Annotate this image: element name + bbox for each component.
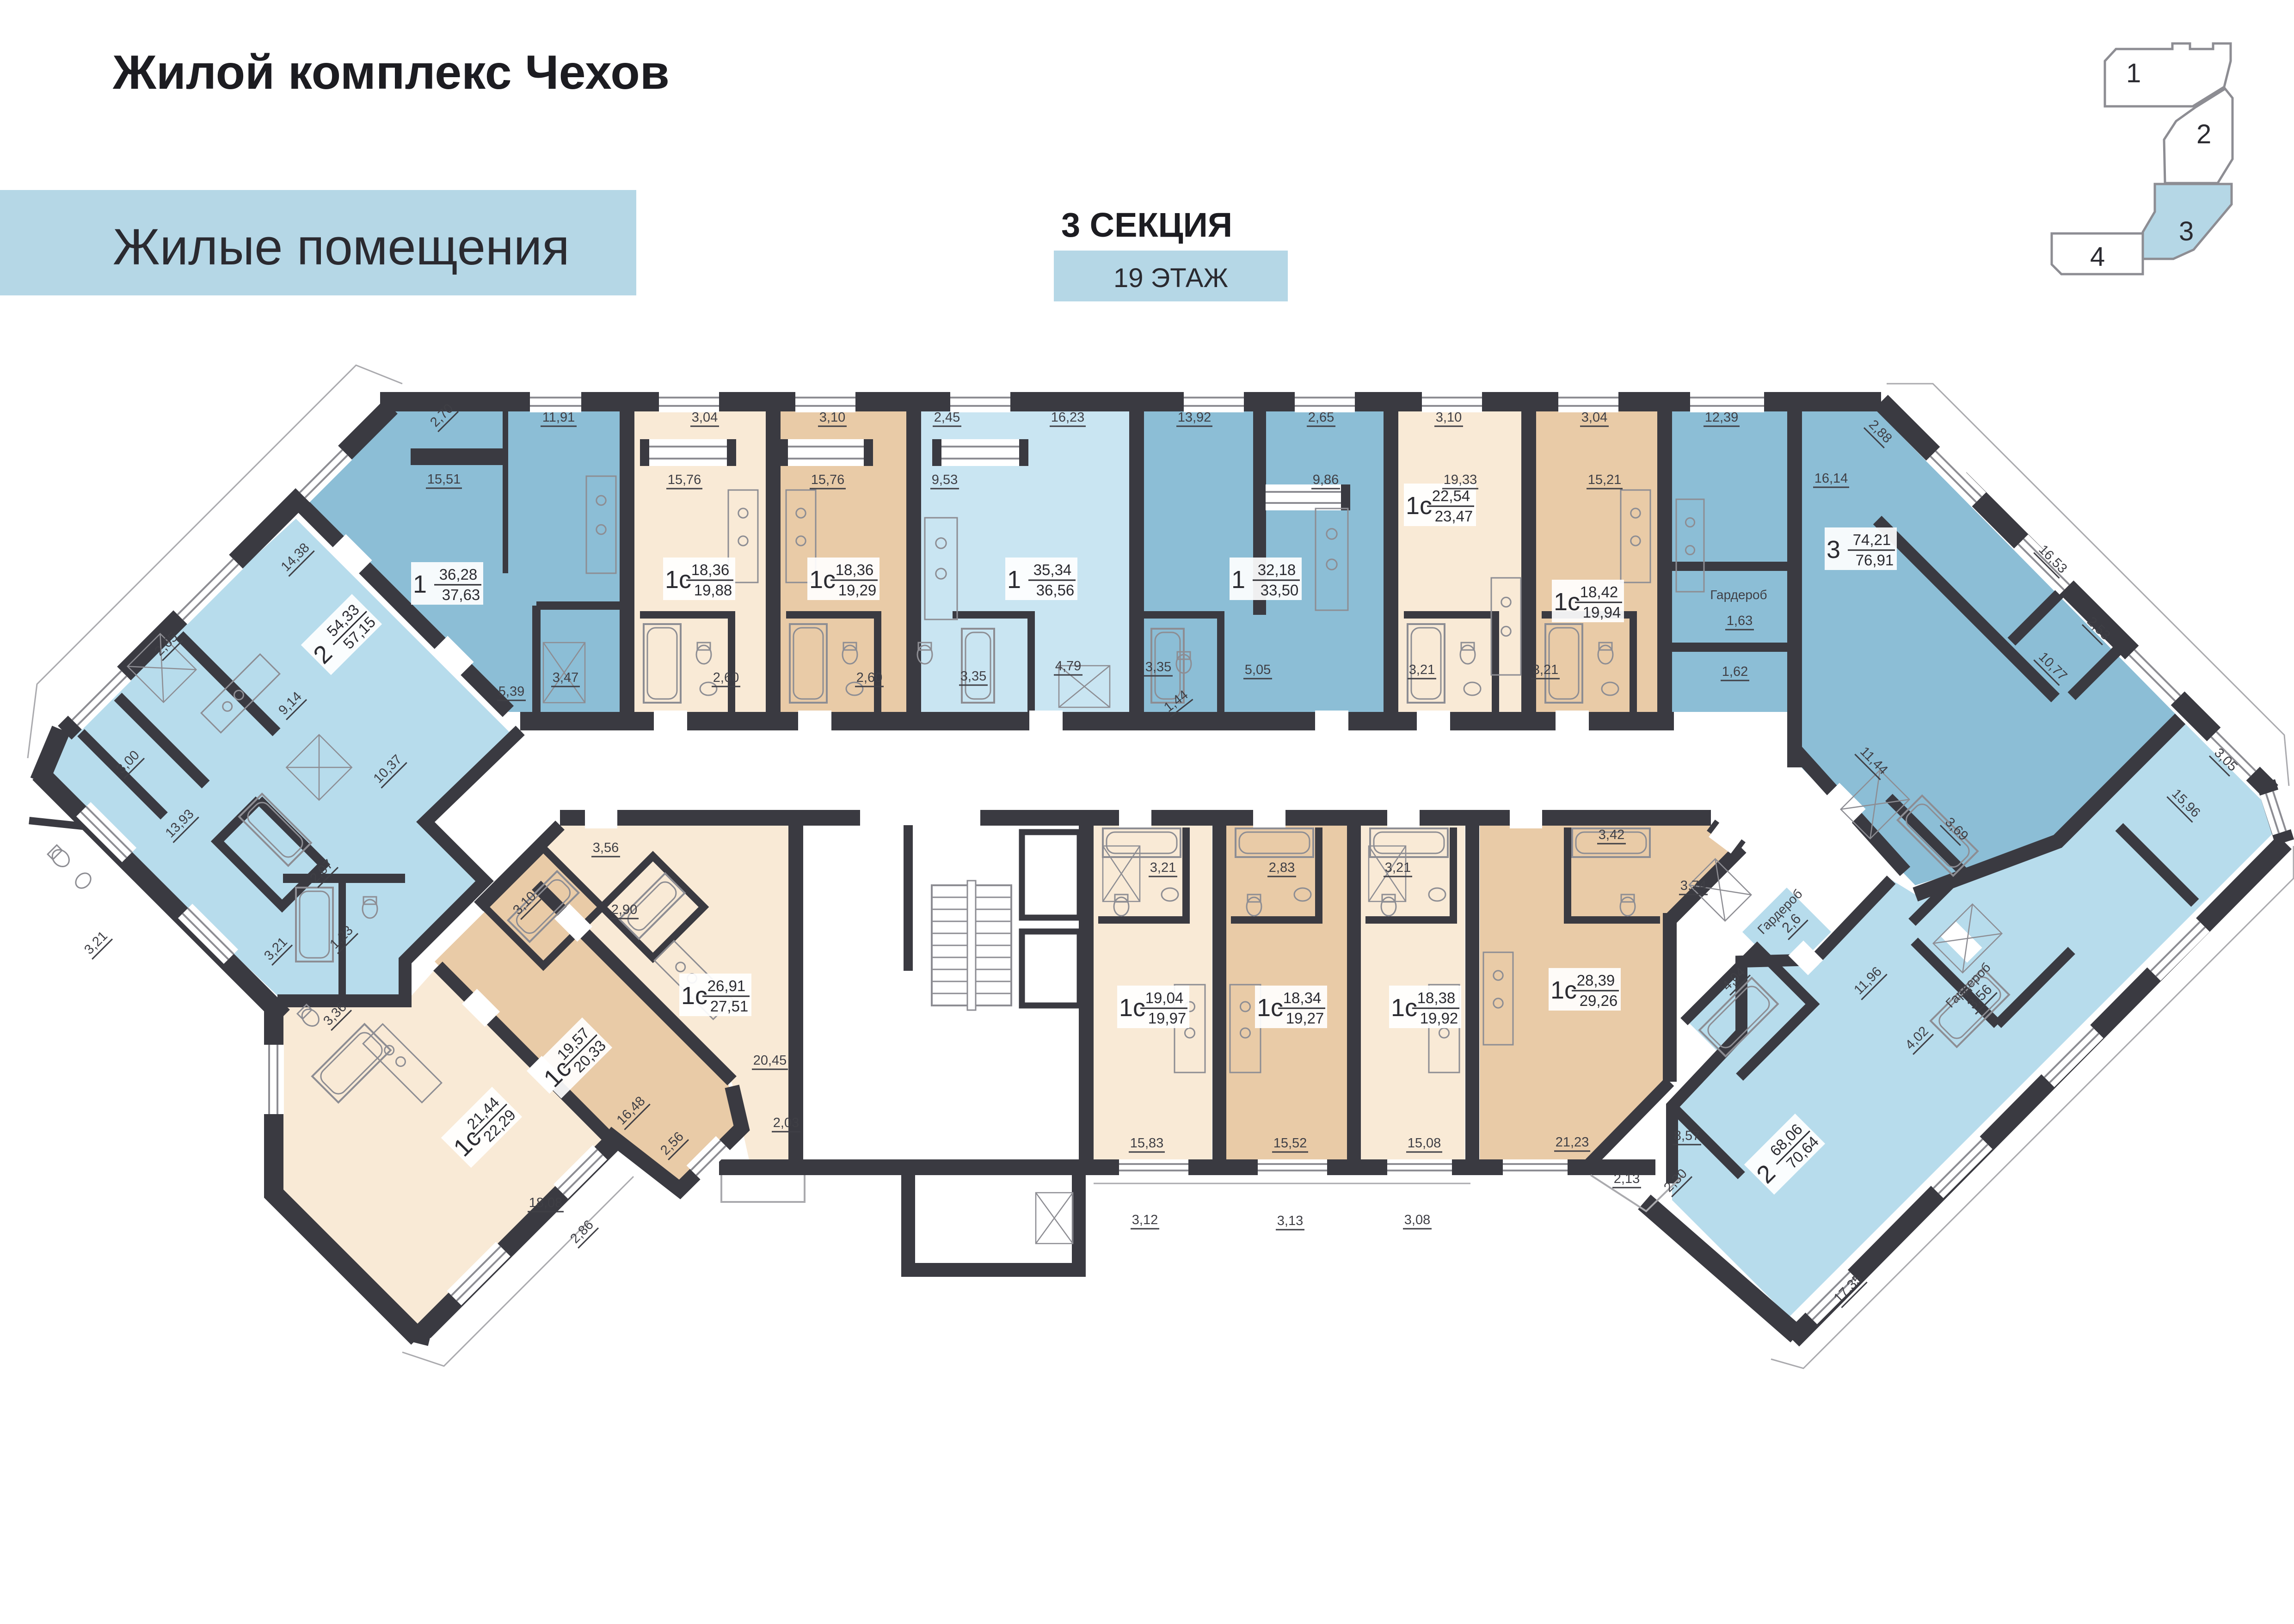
- svg-text:2,83: 2,83: [1269, 860, 1295, 875]
- svg-text:27,51: 27,51: [710, 998, 749, 1015]
- svg-text:1,62: 1,62: [1722, 664, 1748, 679]
- svg-text:18,34: 18,34: [1283, 989, 1322, 1006]
- svg-text:19,04: 19,04: [1145, 989, 1184, 1006]
- svg-text:1: 1: [1231, 566, 1245, 594]
- svg-text:3,21: 3,21: [1409, 662, 1435, 677]
- svg-text:35,34: 35,34: [1033, 561, 1072, 578]
- svg-text:29,26: 29,26: [1580, 992, 1618, 1009]
- svg-text:1,63: 1,63: [1727, 613, 1753, 628]
- svg-text:4: 4: [2090, 242, 2105, 272]
- svg-text:Жилые помещения: Жилые помещения: [113, 219, 570, 276]
- svg-text:3,21: 3,21: [1532, 662, 1558, 677]
- svg-text:36,28: 36,28: [439, 566, 478, 583]
- svg-text:16,14: 16,14: [1814, 471, 1848, 486]
- svg-text:Гардероб: Гардероб: [1710, 588, 1767, 602]
- svg-text:18,42: 18,42: [1580, 583, 1618, 601]
- svg-text:3,21: 3,21: [1150, 860, 1176, 875]
- svg-text:5,39: 5,39: [498, 684, 524, 699]
- svg-text:9,53: 9,53: [932, 472, 958, 487]
- svg-text:19,94: 19,94: [1583, 604, 1621, 621]
- svg-text:23,47: 23,47: [1435, 508, 1473, 525]
- svg-text:3,08: 3,08: [1404, 1213, 1430, 1227]
- svg-text:19,33: 19,33: [1444, 472, 1477, 487]
- svg-text:2,90: 2,90: [611, 902, 637, 917]
- svg-text:3,04: 3,04: [692, 410, 718, 425]
- svg-text:19,88: 19,88: [694, 582, 732, 599]
- svg-text:Жилой комплекс Чехов: Жилой комплекс Чехов: [112, 46, 670, 99]
- svg-text:3: 3: [2179, 216, 2194, 246]
- svg-text:2: 2: [2196, 119, 2211, 149]
- svg-text:15,52: 15,52: [1273, 1136, 1307, 1151]
- svg-text:3,21: 3,21: [1385, 860, 1411, 875]
- svg-text:76,91: 76,91: [1856, 552, 1894, 569]
- svg-text:2,60: 2,60: [713, 670, 739, 685]
- svg-text:16,23: 16,23: [1051, 410, 1085, 425]
- svg-text:3: 3: [1827, 536, 1840, 564]
- svg-text:4,79: 4,79: [1055, 659, 1081, 674]
- svg-text:3 СЕКЦИЯ: 3 СЕКЦИЯ: [1061, 206, 1232, 244]
- svg-text:3,35: 3,35: [960, 669, 986, 684]
- svg-text:18,36: 18,36: [691, 561, 730, 578]
- svg-text:21,23: 21,23: [1556, 1135, 1589, 1150]
- svg-text:19,97: 19,97: [1148, 1010, 1187, 1027]
- svg-text:12,39: 12,39: [1705, 410, 1739, 425]
- svg-text:2,13: 2,13: [1614, 1171, 1640, 1186]
- svg-text:19,29: 19,29: [838, 582, 877, 599]
- svg-text:2,60: 2,60: [856, 670, 882, 685]
- svg-text:15,76: 15,76: [811, 472, 845, 487]
- svg-text:26,91: 26,91: [707, 977, 746, 994]
- svg-text:1: 1: [1007, 566, 1021, 594]
- svg-text:3,04: 3,04: [1581, 410, 1607, 425]
- svg-text:15,08: 15,08: [1408, 1136, 1441, 1151]
- svg-text:3,10: 3,10: [1436, 410, 1462, 425]
- svg-text:3,42: 3,42: [1599, 827, 1624, 842]
- svg-text:11,91: 11,91: [542, 410, 575, 425]
- svg-text:33,50: 33,50: [1261, 582, 1299, 599]
- svg-text:3,74: 3,74: [1680, 878, 1706, 893]
- svg-text:15,51: 15,51: [427, 472, 461, 487]
- svg-text:3,56: 3,56: [593, 840, 619, 855]
- svg-text:3,12: 3,12: [1132, 1213, 1158, 1227]
- svg-text:19,92: 19,92: [1420, 1010, 1458, 1027]
- svg-text:3,35: 3,35: [1145, 660, 1171, 674]
- svg-text:13,92: 13,92: [1178, 410, 1212, 425]
- svg-text:37,63: 37,63: [442, 586, 480, 603]
- svg-text:3,47: 3,47: [553, 670, 578, 685]
- svg-text:2,45: 2,45: [934, 410, 960, 425]
- svg-text:8,57: 8,57: [1674, 1128, 1700, 1143]
- svg-text:3,13: 3,13: [1277, 1213, 1303, 1228]
- svg-text:2,03: 2,03: [773, 1115, 799, 1130]
- svg-text:15,83: 15,83: [1130, 1136, 1164, 1151]
- svg-text:74,21: 74,21: [1853, 531, 1891, 548]
- svg-text:2,65: 2,65: [1308, 410, 1334, 425]
- svg-text:1: 1: [413, 570, 427, 598]
- svg-text:20,45: 20,45: [753, 1053, 787, 1068]
- svg-text:36,56: 36,56: [1036, 582, 1075, 599]
- svg-text:1: 1: [2126, 58, 2141, 88]
- svg-text:22,54: 22,54: [1432, 487, 1470, 504]
- svg-text:28,39: 28,39: [1577, 972, 1615, 989]
- svg-text:3,10: 3,10: [819, 410, 845, 425]
- svg-text:9,86: 9,86: [1313, 472, 1339, 487]
- svg-text:18,08: 18,08: [529, 1195, 563, 1210]
- svg-text:15,76: 15,76: [668, 472, 701, 487]
- svg-text:5,05: 5,05: [1245, 662, 1271, 677]
- svg-text:19,27: 19,27: [1286, 1010, 1324, 1027]
- svg-text:18,38: 18,38: [1417, 989, 1456, 1006]
- svg-text:19 ЭТАЖ: 19 ЭТАЖ: [1113, 263, 1228, 293]
- svg-text:15,21: 15,21: [1588, 472, 1622, 487]
- svg-text:18,36: 18,36: [836, 561, 874, 578]
- svg-text:32,18: 32,18: [1258, 561, 1296, 578]
